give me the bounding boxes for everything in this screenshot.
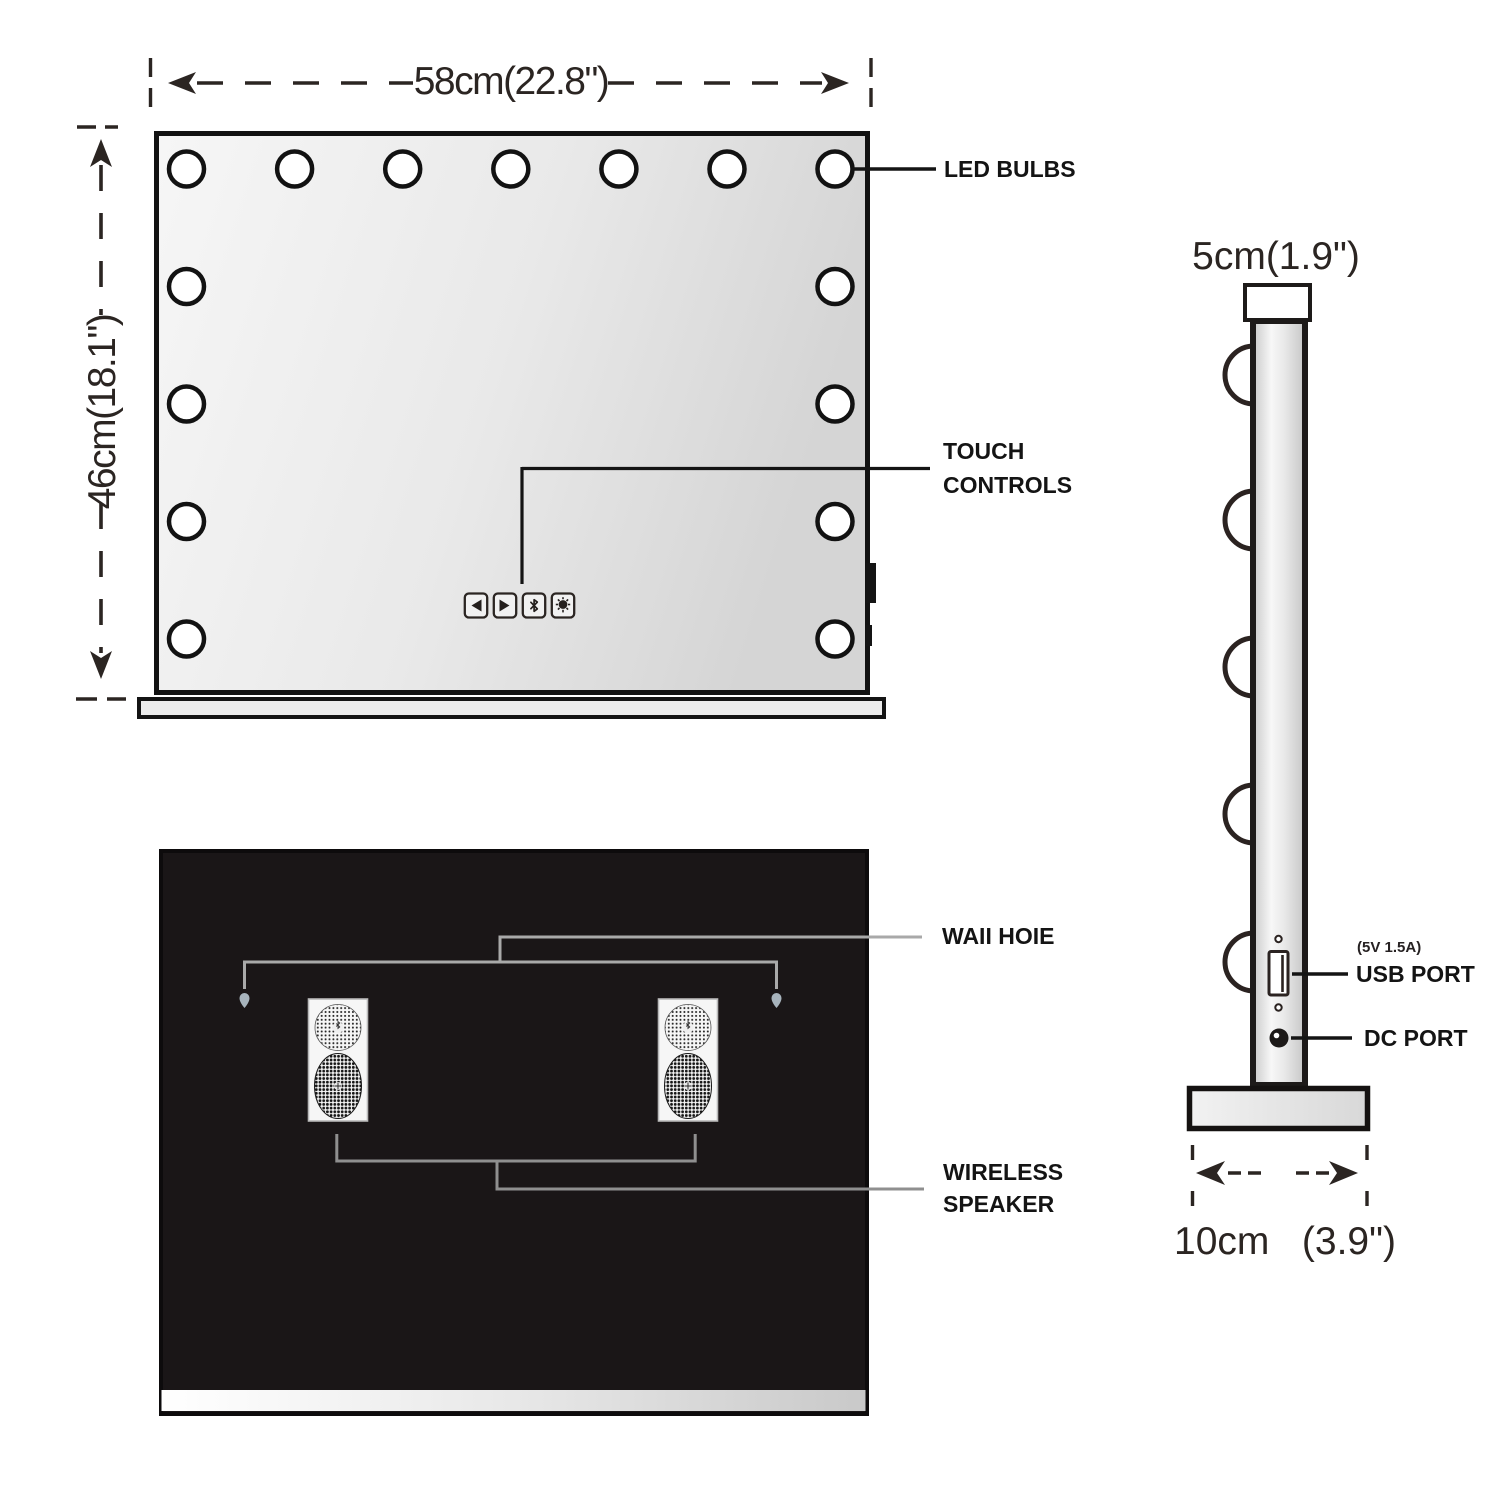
- svg-text:5cm(1.9"): 5cm(1.9"): [1192, 235, 1360, 278]
- svg-text:CONTROLS: CONTROLS: [943, 472, 1072, 498]
- svg-text:10cm (3.9"): 10cm (3.9"): [1174, 1220, 1396, 1263]
- svg-text:(5V 1.5A): (5V 1.5A): [1357, 939, 1421, 956]
- svg-text:46cm(18.1"): 46cm(18.1"): [81, 315, 124, 510]
- svg-text:USB PORT: USB PORT: [1356, 961, 1475, 987]
- svg-text:LED BULBS: LED BULBS: [944, 156, 1076, 182]
- svg-text:WIRELESS: WIRELESS: [943, 1159, 1063, 1185]
- svg-text:DC PORT: DC PORT: [1364, 1025, 1468, 1051]
- svg-text:58cm(22.8"): 58cm(22.8"): [414, 60, 609, 103]
- svg-text:WAII HOIE: WAII HOIE: [942, 923, 1054, 949]
- svg-text:SPEAKER: SPEAKER: [943, 1191, 1055, 1217]
- svg-text:TOUCH: TOUCH: [943, 438, 1024, 464]
